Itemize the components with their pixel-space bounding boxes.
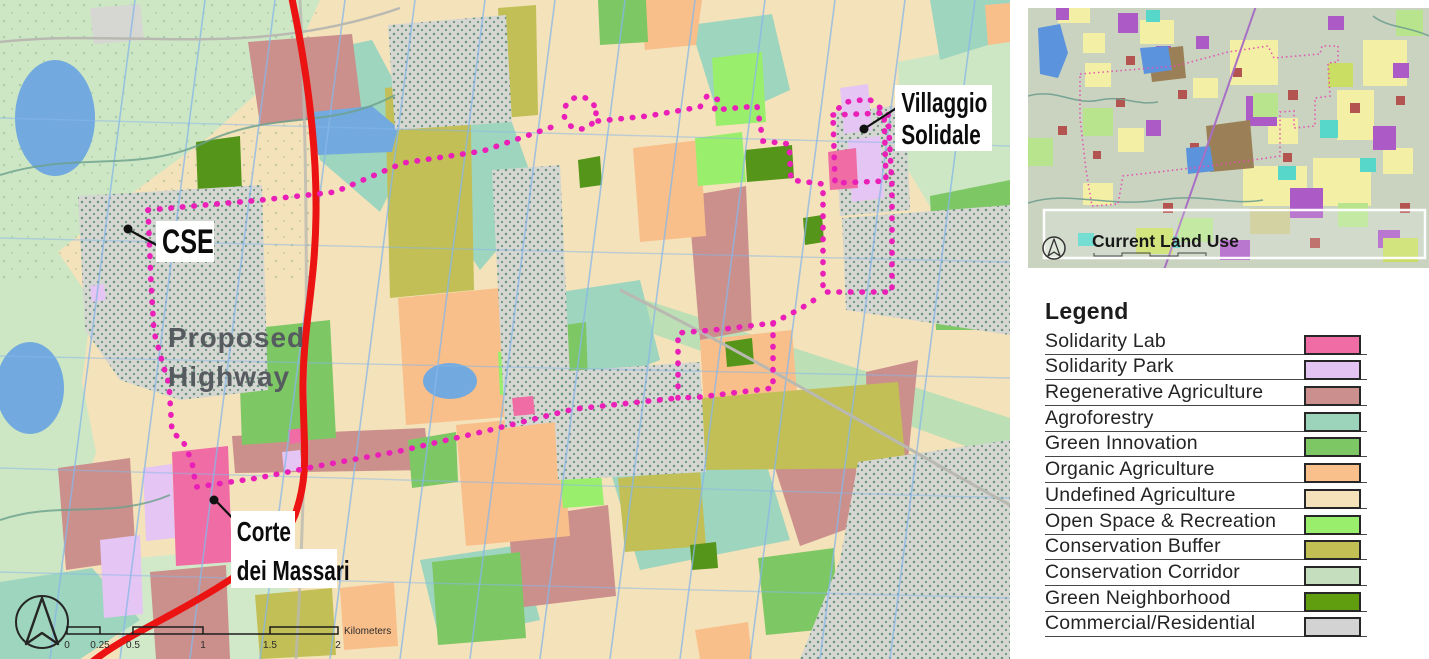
legend-item-label: Green Neighborhood — [1045, 587, 1231, 610]
cse-label: CSE — [162, 223, 214, 261]
legend-title: Legend — [1045, 298, 1367, 325]
villaggio-label-line2: Solidale — [901, 120, 980, 151]
legend-item-swatch — [1304, 412, 1361, 432]
scale-tick-025: 0.25 — [90, 640, 110, 651]
legend-item-label: Green Innovation — [1045, 432, 1198, 455]
scale-tick-1: 1 — [200, 640, 206, 651]
scale-tick-05: 0.5 — [126, 640, 140, 651]
legend-item-swatch — [1304, 566, 1361, 586]
legend-item-swatch — [1304, 335, 1361, 355]
legend-item: Regenerative Agriculture — [1045, 380, 1367, 406]
scale-unit-label: Kilometers — [344, 626, 391, 637]
legend-item: Solidarity Park — [1045, 355, 1367, 381]
legend-item-swatch — [1304, 437, 1361, 457]
legend-item-label: Solidarity Lab — [1045, 330, 1166, 353]
legend-item-swatch — [1304, 386, 1361, 406]
villaggio-label-line1: Villaggio — [901, 88, 987, 119]
scale-tick-15: 1.5 — [263, 640, 277, 651]
legend-item-swatch — [1304, 540, 1361, 560]
scale-tick-2: 2 — [335, 640, 341, 651]
legend-item: Agroforestry — [1045, 406, 1367, 432]
legend-item-label: Conservation Buffer — [1045, 535, 1221, 558]
proposed-highway-label-line1: Proposed — [168, 322, 305, 353]
legend-item-label: Regenerative Agriculture — [1045, 381, 1263, 404]
legend-item-label: Open Space & Recreation — [1045, 510, 1276, 533]
legend-panel: Legend Solidarity Lab Solidarity Park Re… — [1045, 298, 1367, 637]
legend-item-swatch — [1304, 489, 1361, 509]
main-map: Proposed Highway CSE Villaggio Solidale — [0, 0, 1010, 659]
legend-item: Conservation Buffer — [1045, 535, 1367, 561]
legend-item-swatch — [1304, 463, 1361, 483]
main-map-canvas: Proposed Highway CSE Villaggio Solidale — [0, 0, 1010, 659]
corte-label-line1: Corte — [237, 517, 291, 548]
legend-item: Organic Agriculture — [1045, 457, 1367, 483]
proposed-highway-label-line2: Highway — [168, 361, 290, 392]
corte-label-line2: dei Massari — [237, 556, 350, 587]
legend-item-swatch — [1304, 592, 1361, 612]
legend-item-swatch — [1304, 515, 1361, 535]
legend-item: Solidarity Lab — [1045, 329, 1367, 355]
inset-caption: Current Land Use — [1043, 210, 1425, 259]
legend-item: Green Innovation — [1045, 432, 1367, 458]
scale-tick-0: 0 — [64, 640, 70, 651]
inset-map-canvas: Current Land Use — [1028, 8, 1429, 268]
legend-item: Green Neighborhood — [1045, 586, 1367, 612]
legend-item-label: Solidarity Park — [1045, 355, 1174, 378]
legend-item-label: Commercial/Residential — [1045, 612, 1255, 635]
legend-item: Open Space & Recreation — [1045, 509, 1367, 535]
inset-current-land-use-map: Current Land Use — [1028, 8, 1429, 268]
legend-item: Conservation Corridor — [1045, 560, 1367, 586]
legend-item-label: Agroforestry — [1045, 407, 1154, 430]
legend-item-swatch — [1304, 360, 1361, 380]
inset-title: Current Land Use — [1092, 231, 1239, 251]
land-use-plan-figure: Proposed Highway CSE Villaggio Solidale — [0, 0, 1429, 659]
legend-item: Commercial/Residential — [1045, 612, 1367, 638]
legend-item-label: Conservation Corridor — [1045, 561, 1240, 584]
legend-item-swatch — [1304, 617, 1361, 637]
legend-item: Undefined Agriculture — [1045, 483, 1367, 509]
legend-item-label: Organic Agriculture — [1045, 458, 1215, 481]
legend-item-label: Undefined Agriculture — [1045, 484, 1236, 507]
